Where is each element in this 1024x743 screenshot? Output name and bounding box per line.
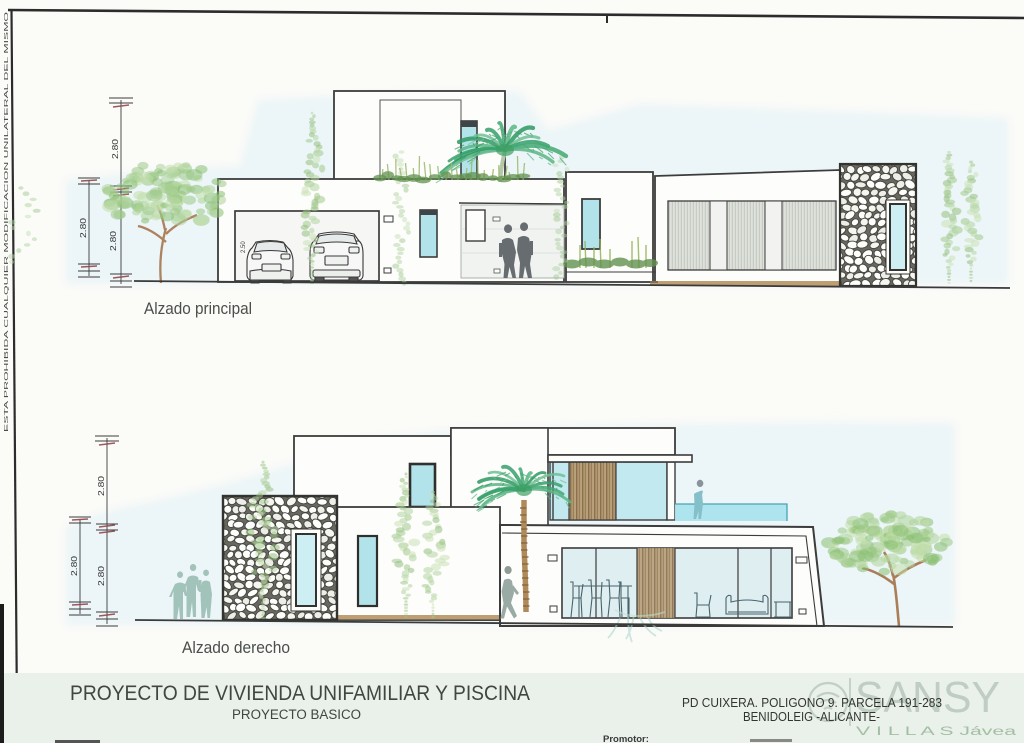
svg-text:PD CUIXERA. POLIGONO 9. PARCEL: PD CUIXERA. POLIGONO 9. PARCELA 191-283 [682,696,942,710]
svg-text:Alzado principal: Alzado principal [144,300,252,318]
svg-text:2.80: 2.80 [96,476,106,496]
svg-text:PROYECTO DE VIVIENDA UNIFAMILI: PROYECTO DE VIVIENDA UNIFAMILIAR Y PISCI… [70,682,530,705]
svg-text:2.80: 2.80 [78,218,88,238]
svg-text:2.50: 2.50 [241,241,247,253]
svg-text:BENIDOLEIG -ALICANTE-: BENIDOLEIG -ALICANTE- [743,710,880,724]
svg-text:Alzado derecho: Alzado derecho [182,639,290,657]
svg-text:2.80: 2.80 [108,231,118,251]
svg-text:2.80: 2.80 [110,139,120,159]
svg-text:2.80: 2.80 [69,556,79,576]
svg-text:V I L L A S Jávea: V I L L A S Jávea [856,726,1017,738]
svg-text:PROYECTO BASICO: PROYECTO BASICO [232,707,361,722]
svg-text:2.80: 2.80 [96,566,106,586]
svg-text:Promotor:: Promotor: [603,734,649,743]
